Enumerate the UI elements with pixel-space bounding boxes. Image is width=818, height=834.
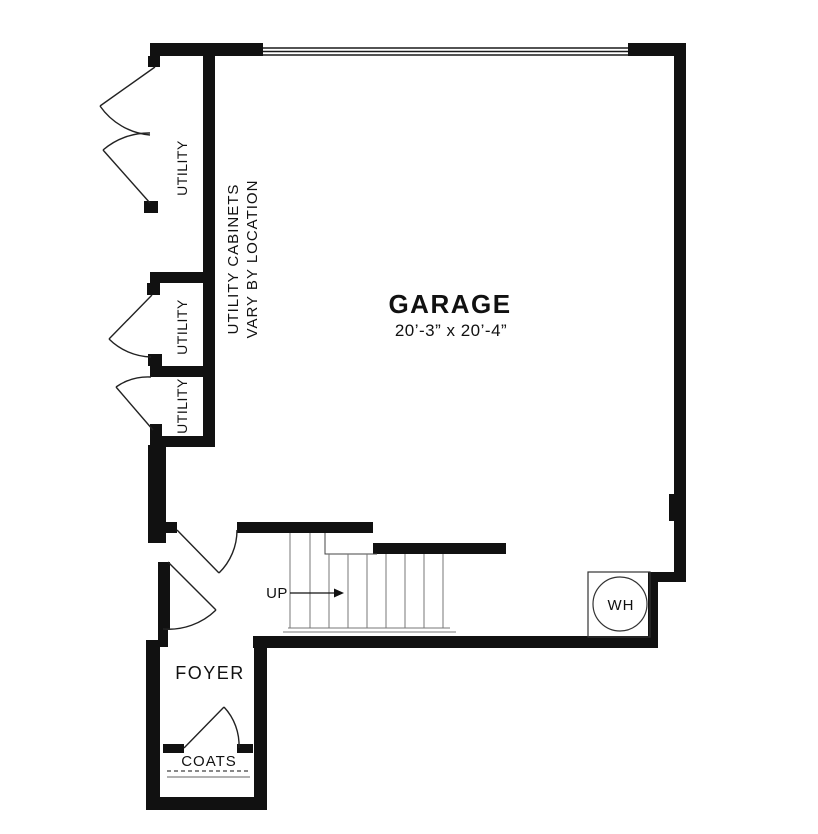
- walls: [144, 43, 686, 810]
- floor-plan: UP WH COATS GARAGE 20’-3: [0, 0, 818, 834]
- garage-label: GARAGE: [388, 289, 511, 319]
- foyer-door-leaf: [168, 562, 216, 610]
- passage-door-swing: [219, 530, 237, 573]
- stairs-up-label: UP: [266, 585, 288, 602]
- wall-stair-top-b: [373, 543, 506, 554]
- wall-coats-header-left: [163, 744, 184, 753]
- jamb-utility-3-bottom: [150, 424, 162, 436]
- utility-1-label: UTILITY: [174, 140, 190, 196]
- wall-foyer-bottom: [146, 797, 267, 810]
- stair-landing-outline: [325, 533, 377, 554]
- wall-right-jamb: [669, 494, 677, 521]
- jamb-passage-door: [166, 522, 177, 533]
- utility-2-label: UTILITY: [174, 299, 190, 355]
- wall-foyer-right: [254, 636, 267, 810]
- wall-utility-divider-2: [150, 366, 215, 377]
- utility-1-door-upper-leaf: [100, 67, 155, 106]
- coats-closet: COATS: [167, 753, 250, 777]
- wall-left-lower: [158, 562, 170, 630]
- wall-stair-top-a: [237, 522, 373, 533]
- jamb-utility-2-bottom: [148, 354, 162, 366]
- wall-left-mid: [148, 445, 166, 543]
- garage-door: [263, 48, 628, 55]
- utility-3-door-swing: [116, 377, 151, 387]
- utility-1-door-lower-leaf: [103, 150, 150, 203]
- utility-3-door-leaf: [116, 387, 153, 430]
- wall-foyer-left: [146, 640, 160, 810]
- utility-note-line-1: UTILITY CABINETS: [225, 184, 242, 335]
- utility-2-door-swing: [109, 339, 151, 357]
- doors: [100, 67, 239, 748]
- up-arrow-head: [334, 589, 344, 598]
- wall-utility-east: [203, 43, 215, 447]
- floor-plan-page: UP WH COATS GARAGE 20’-3: [0, 0, 818, 834]
- utility-1-door-upper-swing: [100, 106, 150, 135]
- jamb-utility-2-top: [147, 283, 160, 295]
- garage-dimensions: 20’-3” x 20’-4”: [395, 321, 507, 340]
- wall-utility-divider-1: [150, 272, 215, 283]
- coats-door-leaf: [184, 707, 224, 748]
- utility-2-door-leaf: [109, 295, 152, 339]
- coats-door-swing: [224, 707, 239, 748]
- room-labels: GARAGE 20’-3” x 20’-4” FOYER UTILITY UTI…: [174, 140, 512, 683]
- utility-3-label: UTILITY: [174, 378, 190, 434]
- jamb-utility-1-mid: [144, 201, 158, 213]
- foyer-label: FOYER: [175, 663, 245, 683]
- wall-stair-bottom: [253, 636, 658, 648]
- utility-1-door-lower-swing: [103, 133, 150, 150]
- water-heater-label: WH: [608, 597, 635, 614]
- water-heater: WH: [588, 572, 650, 637]
- wall-right-jog: [648, 572, 686, 582]
- coats-label: COATS: [181, 753, 237, 770]
- foyer-door-swing: [163, 610, 216, 629]
- jamb-top-left: [148, 56, 160, 67]
- utility-note-line-2: VARY BY LOCATION: [244, 180, 261, 339]
- passage-door-leaf: [177, 530, 219, 573]
